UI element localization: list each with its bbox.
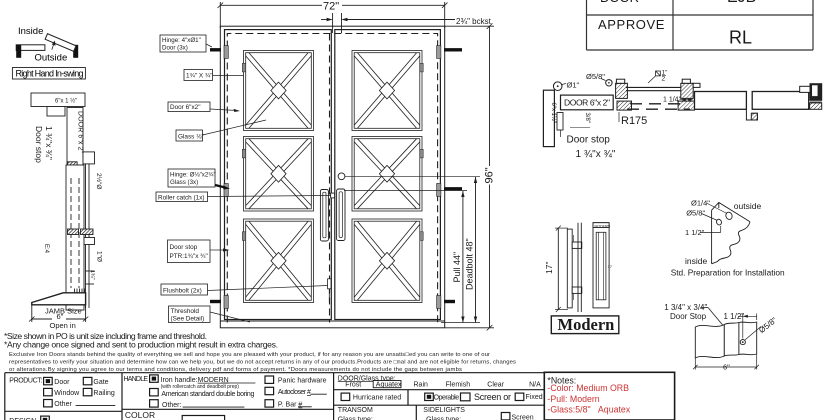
svg-text:Fixed: Fixed <box>526 394 543 401</box>
svg-text:MODERN: MODERN <box>595 224 611 228</box>
svg-text:JAMB Size: JAMB Size <box>45 307 82 316</box>
svg-text:Glass type:: Glass type: <box>426 417 461 420</box>
svg-text:1"Ø: 1"Ø <box>96 251 103 262</box>
svg-text:17: 17 <box>608 264 613 269</box>
svg-text:DOOR 6"x 2": DOOR 6"x 2" <box>564 98 610 108</box>
svg-text:Modern: Modern <box>558 315 615 334</box>
svg-text:Operable: Operable <box>434 394 460 401</box>
svg-text:6"x 1 ½": 6"x 1 ½" <box>55 98 77 105</box>
svg-text:Other: Other <box>54 401 72 408</box>
svg-text:(See Detail): (See Detail) <box>171 316 205 323</box>
svg-text:Std. Preparation for Installat: Std. Preparation for Installation <box>671 268 785 278</box>
svg-text:Door Stop: Door Stop <box>670 312 707 321</box>
svg-text:Door stop: Door stop <box>34 126 44 163</box>
svg-text:SIDELIGHTS: SIDELIGHTS <box>423 407 465 414</box>
svg-text:COLOR: COLOR <box>125 410 155 420</box>
svg-text:1 ¾"x ¾": 1 ¾"x ¾" <box>44 126 54 160</box>
svg-text:-Glass:5/8" Aquatex: -Glass:5/8" Aquatex <box>547 404 630 414</box>
svg-text:Roller catch (1x): Roller catch (1x) <box>158 195 205 202</box>
svg-text:Glass (3x): Glass (3x) <box>170 179 198 186</box>
svg-text:Aquatex: Aquatex <box>376 382 402 389</box>
svg-text:*Any change once signed and se: *Any change once signed and sent to prod… <box>4 340 278 350</box>
svg-text:Outside: Outside <box>35 53 68 64</box>
svg-text:HANDLE: HANDLE <box>124 376 149 383</box>
svg-text:Ø5/8": Ø5/8" <box>586 72 605 81</box>
svg-text:PRODUCT:: PRODUCT: <box>9 378 42 385</box>
svg-text:inside: inside <box>685 256 707 266</box>
svg-text:Door stop: Door stop <box>567 135 611 146</box>
svg-text:RL: RL <box>729 28 752 48</box>
svg-text:Flushbolt (2x): Flushbolt (2x) <box>163 288 202 295</box>
svg-text:(with rollercatch and deadbolt: (with rollercatch and deadbolt prep) <box>161 384 240 390</box>
svg-text:outside: outside <box>734 201 762 211</box>
svg-text:Railing: Railing <box>93 390 115 397</box>
svg-text:TRANSOM: TRANSOM <box>338 407 373 414</box>
svg-text:6"x 1½": 6"x 1½" <box>550 103 557 124</box>
svg-text:Ø5/8": Ø5/8" <box>686 209 705 218</box>
svg-text:Glass ⅛": Glass ⅛" <box>178 134 204 141</box>
svg-text:Threshold: Threshold <box>171 308 200 315</box>
svg-text:17": 17" <box>544 262 554 274</box>
svg-text:Glass type:: Glass type: <box>338 417 373 420</box>
svg-text:Inside: Inside <box>18 26 43 37</box>
svg-text:Pull 44": Pull 44" <box>452 252 462 283</box>
svg-text:Autocloser #: Autocloser # <box>278 389 311 396</box>
svg-text:1¾" X ¾": 1¾" X ¾" <box>186 73 213 80</box>
svg-text:Hinge: Ø⅛"x2¾": Hinge: Ø⅛"x2¾" <box>170 172 216 179</box>
svg-text:Gate: Gate <box>93 379 108 386</box>
svg-text:Screen: Screen <box>512 415 534 420</box>
svg-text:DOOR 6"x 2": DOOR 6"x 2" <box>77 111 84 154</box>
svg-text:Other:: Other: <box>162 402 182 409</box>
svg-text:EJB: EJB <box>727 0 756 6</box>
svg-text:Rain: Rain <box>414 381 429 388</box>
svg-text:6": 6" <box>723 363 730 372</box>
svg-text:Right Hand In-swing: Right Hand In-swing <box>16 69 84 79</box>
svg-text:Screen or: Screen or <box>474 392 511 402</box>
svg-text:Exclusive Iron Doors stands be: Exclusive Iron Doors stands behind the q… <box>9 352 490 358</box>
svg-text:6": 6" <box>57 312 64 321</box>
svg-text:Window: Window <box>54 390 80 397</box>
svg-text:P. Bar #: P. Bar # <box>278 402 303 409</box>
svg-text:E:4: E:4 <box>43 244 49 254</box>
svg-text:American standard double borin: American standard double boring <box>161 391 254 398</box>
svg-text:Frost: Frost <box>345 382 361 389</box>
svg-text:PTR:1¾"x ¾": PTR:1¾"x ¾" <box>170 253 208 260</box>
svg-text:3/8": 3/8" <box>584 113 590 123</box>
svg-text:Clear: Clear <box>487 381 504 388</box>
svg-text:Door: Door <box>54 379 70 386</box>
svg-text:72": 72" <box>323 1 339 13</box>
svg-text:R175: R175 <box>621 115 647 127</box>
svg-text:Panic hardware: Panic hardware <box>278 378 327 385</box>
svg-text:Hinge: 4"xØ1": Hinge: 4"xØ1" <box>162 37 201 44</box>
svg-text:Ø1": Ø1" <box>567 81 580 90</box>
svg-text:N/A: N/A <box>529 381 541 388</box>
svg-text:Door 6"x2": Door 6"x2" <box>170 104 200 111</box>
svg-text:Door (3x): Door (3x) <box>162 45 188 52</box>
svg-text:1 ¾"x ¾": 1 ¾"x ¾" <box>576 149 616 160</box>
svg-text:2¾" bckst.: 2¾" bckst. <box>456 17 493 26</box>
svg-text:Flemish: Flemish <box>446 381 471 388</box>
svg-text:Deadbolt 48": Deadbolt 48" <box>465 238 475 290</box>
svg-text:APPROVE: APPROVE <box>598 17 665 32</box>
svg-text:Open in: Open in <box>50 321 76 330</box>
svg-text:2: 2 <box>662 76 666 83</box>
svg-text:Ø1/4": Ø1/4" <box>691 199 710 208</box>
svg-text:-Pull: Modern: -Pull: Modern <box>547 394 599 404</box>
svg-text:Door stop: Door stop <box>170 244 198 251</box>
svg-text:DOOR: DOOR <box>600 0 639 5</box>
svg-text:representatives to verify your: representatives to verify your situation… <box>9 360 516 366</box>
svg-text:-Color: Medium ORB: -Color: Medium ORB <box>547 383 629 393</box>
svg-text:Hurricane rated: Hurricane rated <box>353 394 401 401</box>
svg-text:96": 96" <box>484 167 496 183</box>
svg-text:2½"Ø: 2½"Ø <box>95 173 103 189</box>
svg-text:Iron handle:MODERN: Iron handle:MODERN <box>161 377 229 384</box>
